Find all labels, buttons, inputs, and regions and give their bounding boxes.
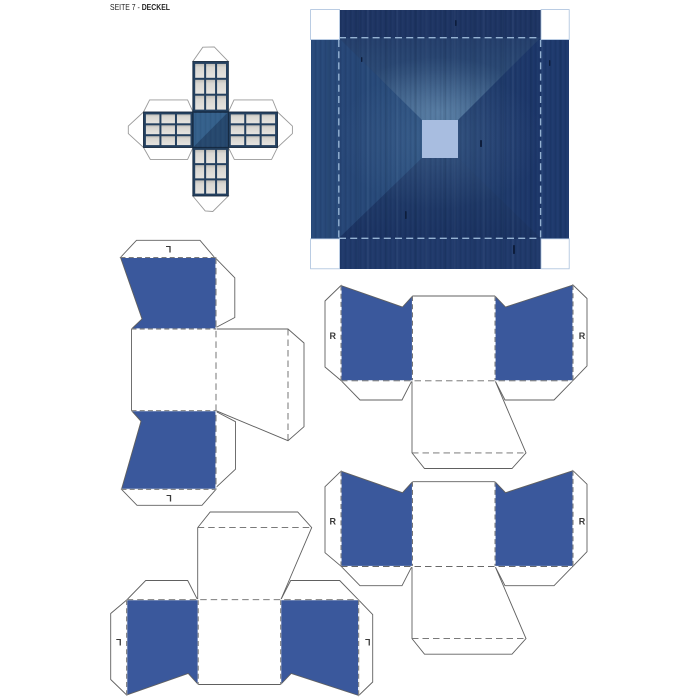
svg-text:R: R — [579, 331, 586, 341]
svg-text:R: R — [579, 517, 586, 527]
svg-text:R: R — [330, 331, 337, 341]
svg-text:R: R — [330, 517, 337, 527]
svg-text:L: L — [115, 637, 121, 647]
svg-text:L: L — [364, 637, 370, 647]
svg-text:L: L — [166, 493, 172, 503]
svg-text:SEITE 7 - DECKEL: SEITE 7 - DECKEL — [110, 3, 170, 12]
svg-text:L: L — [165, 244, 171, 254]
